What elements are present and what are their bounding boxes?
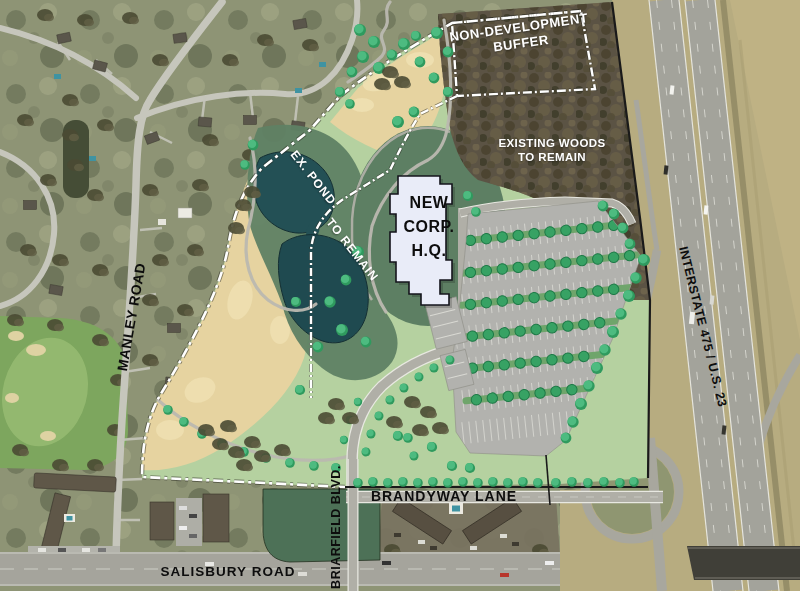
white-barn xyxy=(178,208,192,218)
apartment-complex-c xyxy=(378,497,560,558)
site-plan-aerial-map: NON-DEVELOPMENT BUFFER EXISTING WOODS TO… xyxy=(0,0,800,591)
highway-bridge xyxy=(687,546,800,580)
apartment-complex-b xyxy=(150,494,229,546)
site-plan-graphics xyxy=(0,0,800,591)
golf-course xyxy=(0,314,128,471)
